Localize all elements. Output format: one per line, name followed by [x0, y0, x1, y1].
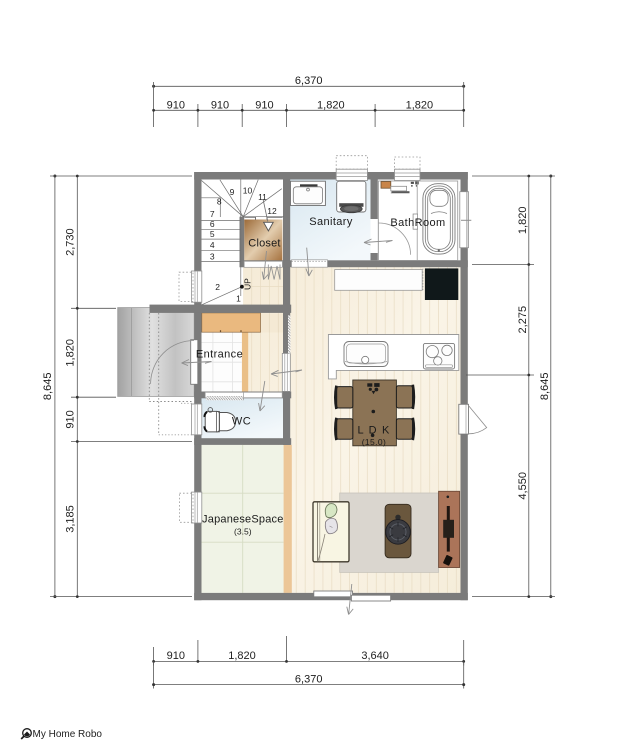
svg-text:12: 12 — [267, 206, 277, 216]
svg-text:7: 7 — [210, 209, 215, 219]
svg-text:3: 3 — [210, 252, 215, 262]
svg-text:6,370: 6,370 — [295, 75, 323, 87]
svg-text:UP: UP — [242, 278, 252, 290]
svg-text:1,820: 1,820 — [317, 99, 345, 111]
svg-text:(3.5): (3.5) — [234, 527, 252, 537]
svg-text:2: 2 — [215, 282, 220, 292]
svg-text:6,370: 6,370 — [295, 674, 323, 686]
svg-text:My Home Robo: My Home Robo — [33, 729, 103, 740]
svg-text:2,275: 2,275 — [517, 306, 529, 334]
svg-text:1,820: 1,820 — [406, 99, 434, 111]
svg-text:11: 11 — [258, 192, 267, 202]
svg-text:Closet: Closet — [248, 238, 280, 250]
svg-text:910: 910 — [167, 99, 185, 111]
svg-text:10: 10 — [243, 186, 253, 196]
svg-text:1,820: 1,820 — [228, 650, 256, 662]
svg-text:5: 5 — [210, 229, 215, 239]
svg-text:8: 8 — [217, 197, 222, 207]
svg-text:6: 6 — [210, 219, 215, 229]
svg-text:9: 9 — [230, 187, 235, 197]
svg-text:3,640: 3,640 — [361, 650, 389, 662]
svg-text:L D K: L D K — [357, 425, 390, 437]
svg-text:8,645: 8,645 — [42, 373, 54, 401]
svg-text:2,730: 2,730 — [64, 228, 76, 256]
svg-text:(15.0): (15.0) — [362, 437, 387, 447]
svg-text:910: 910 — [64, 410, 76, 428]
svg-text:4: 4 — [210, 240, 215, 250]
svg-text:1: 1 — [236, 294, 241, 304]
svg-text:1,820: 1,820 — [517, 207, 529, 235]
svg-text:8,645: 8,645 — [539, 373, 551, 401]
svg-text:3,185: 3,185 — [64, 505, 76, 533]
svg-text:WC: WC — [232, 416, 251, 428]
svg-text:910: 910 — [211, 99, 229, 111]
svg-text:Entrance: Entrance — [196, 349, 243, 361]
svg-text:1,820: 1,820 — [64, 339, 76, 367]
svg-text:910: 910 — [167, 650, 185, 662]
svg-text:JapaneseSpace: JapaneseSpace — [202, 514, 284, 526]
svg-text:4,550: 4,550 — [517, 472, 529, 500]
svg-text:Sanitary: Sanitary — [309, 216, 353, 228]
svg-text:910: 910 — [255, 99, 273, 111]
svg-text:BathRoom: BathRoom — [390, 217, 445, 229]
